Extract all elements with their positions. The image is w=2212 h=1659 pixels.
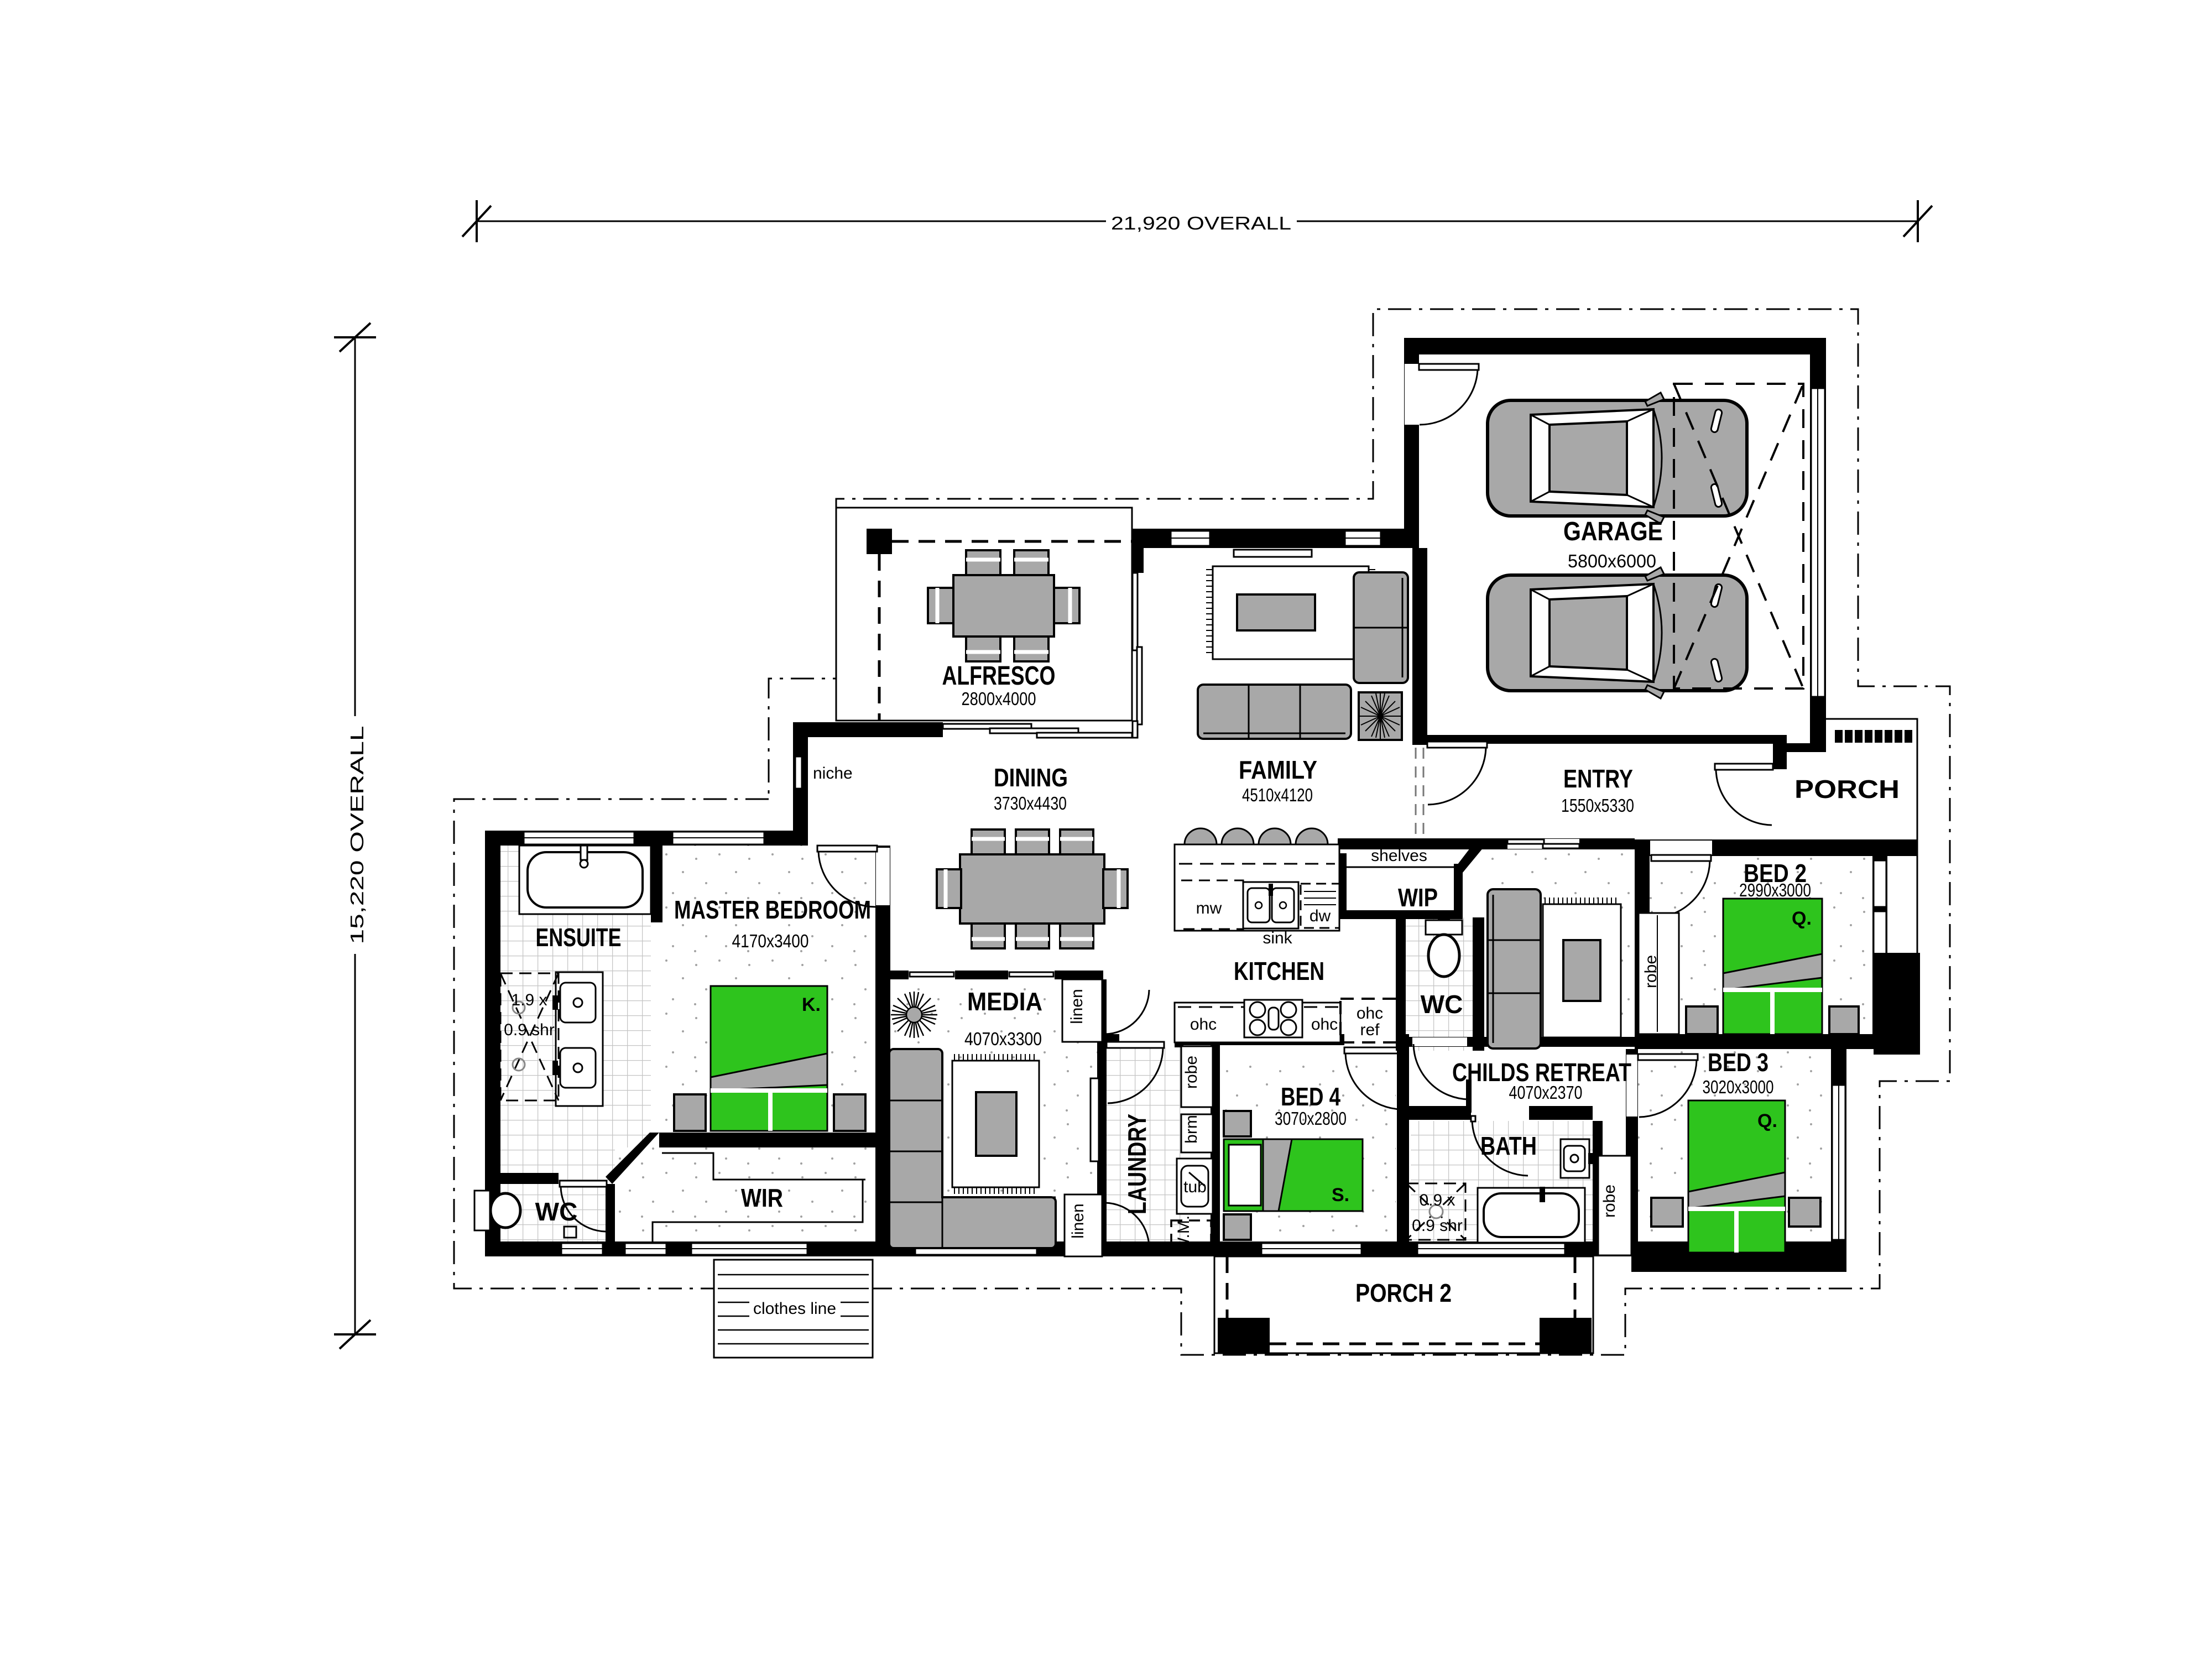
svg-text:S.: S. xyxy=(1332,1185,1349,1206)
svg-text:Q.: Q. xyxy=(1757,1110,1777,1131)
svg-text:4170x3400: 4170x3400 xyxy=(732,931,809,951)
svg-text:robe: robe xyxy=(1642,955,1660,988)
svg-text:1550x5330: 1550x5330 xyxy=(1561,795,1634,816)
svg-text:shelves: shelves xyxy=(1371,847,1427,865)
svg-text:ENSUITE: ENSUITE xyxy=(536,923,622,952)
svg-text:BED 4: BED 4 xyxy=(1281,1082,1340,1111)
svg-text:WC: WC xyxy=(1421,990,1463,1019)
svg-text:KITCHEN: KITCHEN xyxy=(1234,957,1324,985)
svg-text:ohc: ohc xyxy=(1190,1015,1217,1034)
svg-text:robe: robe xyxy=(1182,1056,1201,1089)
svg-text:WIR: WIR xyxy=(741,1183,783,1212)
svg-text:BED 3: BED 3 xyxy=(1708,1048,1768,1077)
svg-text:W.M.: W.M. xyxy=(1175,1215,1193,1253)
svg-text:tub: tub xyxy=(1183,1178,1207,1196)
svg-text:1.9 x: 1.9 x xyxy=(511,991,547,1009)
svg-text:GARAGE: GARAGE xyxy=(1563,517,1663,546)
svg-text:FAMILY: FAMILY xyxy=(1239,755,1317,784)
svg-text:niche: niche xyxy=(813,764,853,782)
svg-text:3020x3000: 3020x3000 xyxy=(1703,1077,1774,1097)
svg-text:4070x2370: 4070x2370 xyxy=(1509,1082,1583,1103)
svg-text:15,220 OVERALL: 15,220 OVERALL xyxy=(347,726,367,945)
svg-text:ohc: ohc xyxy=(1357,1004,1383,1022)
svg-text:linen: linen xyxy=(1069,1203,1087,1238)
svg-text:WC: WC xyxy=(535,1197,578,1226)
svg-text:MASTER BEDROOM: MASTER BEDROOM xyxy=(674,895,871,924)
svg-text:sink: sink xyxy=(1262,929,1292,947)
svg-text:5800x6000: 5800x6000 xyxy=(1568,551,1656,571)
svg-text:Q.: Q. xyxy=(1792,908,1812,929)
svg-text:21,920 OVERALL: 21,920 OVERALL xyxy=(1111,213,1291,233)
svg-text:DINING: DINING xyxy=(994,763,1068,792)
svg-text:MEDIA: MEDIA xyxy=(967,987,1042,1016)
svg-text:robe: robe xyxy=(1600,1185,1619,1218)
svg-text:clothes line: clothes line xyxy=(753,1300,836,1318)
svg-text:4070x3300: 4070x3300 xyxy=(964,1029,1042,1049)
svg-text:ALFRESCO: ALFRESCO xyxy=(942,661,1056,691)
svg-text:4510x4120: 4510x4120 xyxy=(1242,785,1313,805)
svg-text:ohc: ohc xyxy=(1311,1015,1338,1034)
svg-text:ENTRY: ENTRY xyxy=(1563,764,1633,793)
svg-text:K.: K. xyxy=(802,994,821,1015)
svg-text:LAUNDRY: LAUNDRY xyxy=(1123,1114,1151,1214)
svg-text:linen: linen xyxy=(1068,989,1086,1024)
svg-text:brm: brm xyxy=(1182,1115,1201,1144)
svg-text:3730x4430: 3730x4430 xyxy=(994,793,1067,813)
svg-text:PORCH 2: PORCH 2 xyxy=(1355,1279,1452,1307)
svg-text:0.9 shr: 0.9 shr xyxy=(504,1021,555,1039)
svg-text:2800x4000: 2800x4000 xyxy=(962,688,1036,709)
svg-text:WIP: WIP xyxy=(1398,883,1438,912)
svg-text:PORCH: PORCH xyxy=(1794,775,1900,804)
svg-text:3070x2800: 3070x2800 xyxy=(1275,1108,1347,1129)
svg-text:2990x3000: 2990x3000 xyxy=(1739,880,1811,900)
svg-text:BATH: BATH xyxy=(1480,1131,1537,1160)
svg-text:dw: dw xyxy=(1310,907,1331,925)
svg-text:0.9 shr: 0.9 shr xyxy=(1412,1217,1463,1235)
svg-text:0.9 x: 0.9 x xyxy=(1419,1191,1455,1209)
svg-text:mw: mw xyxy=(1196,899,1222,917)
svg-text:ref: ref xyxy=(1360,1021,1380,1039)
